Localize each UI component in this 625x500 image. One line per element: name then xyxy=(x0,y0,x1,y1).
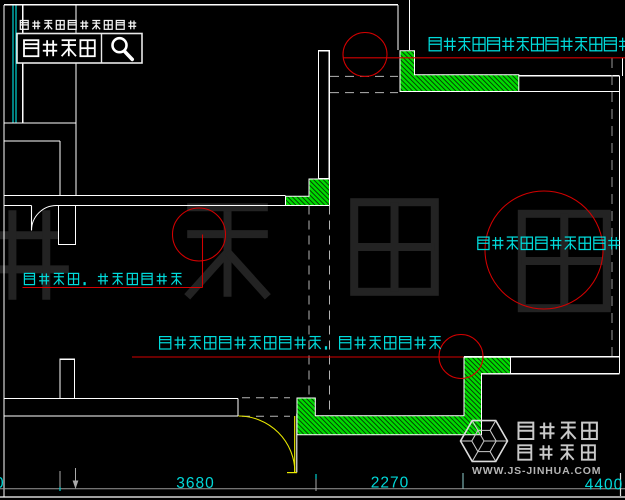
svg-text:2270: 2270 xyxy=(371,475,409,492)
svg-text:4400: 4400 xyxy=(585,477,623,494)
svg-text:0: 0 xyxy=(0,475,4,492)
svg-text:WWW.JS-JINHUA.COM: WWW.JS-JINHUA.COM xyxy=(472,465,601,477)
svg-text:3680: 3680 xyxy=(176,475,214,492)
